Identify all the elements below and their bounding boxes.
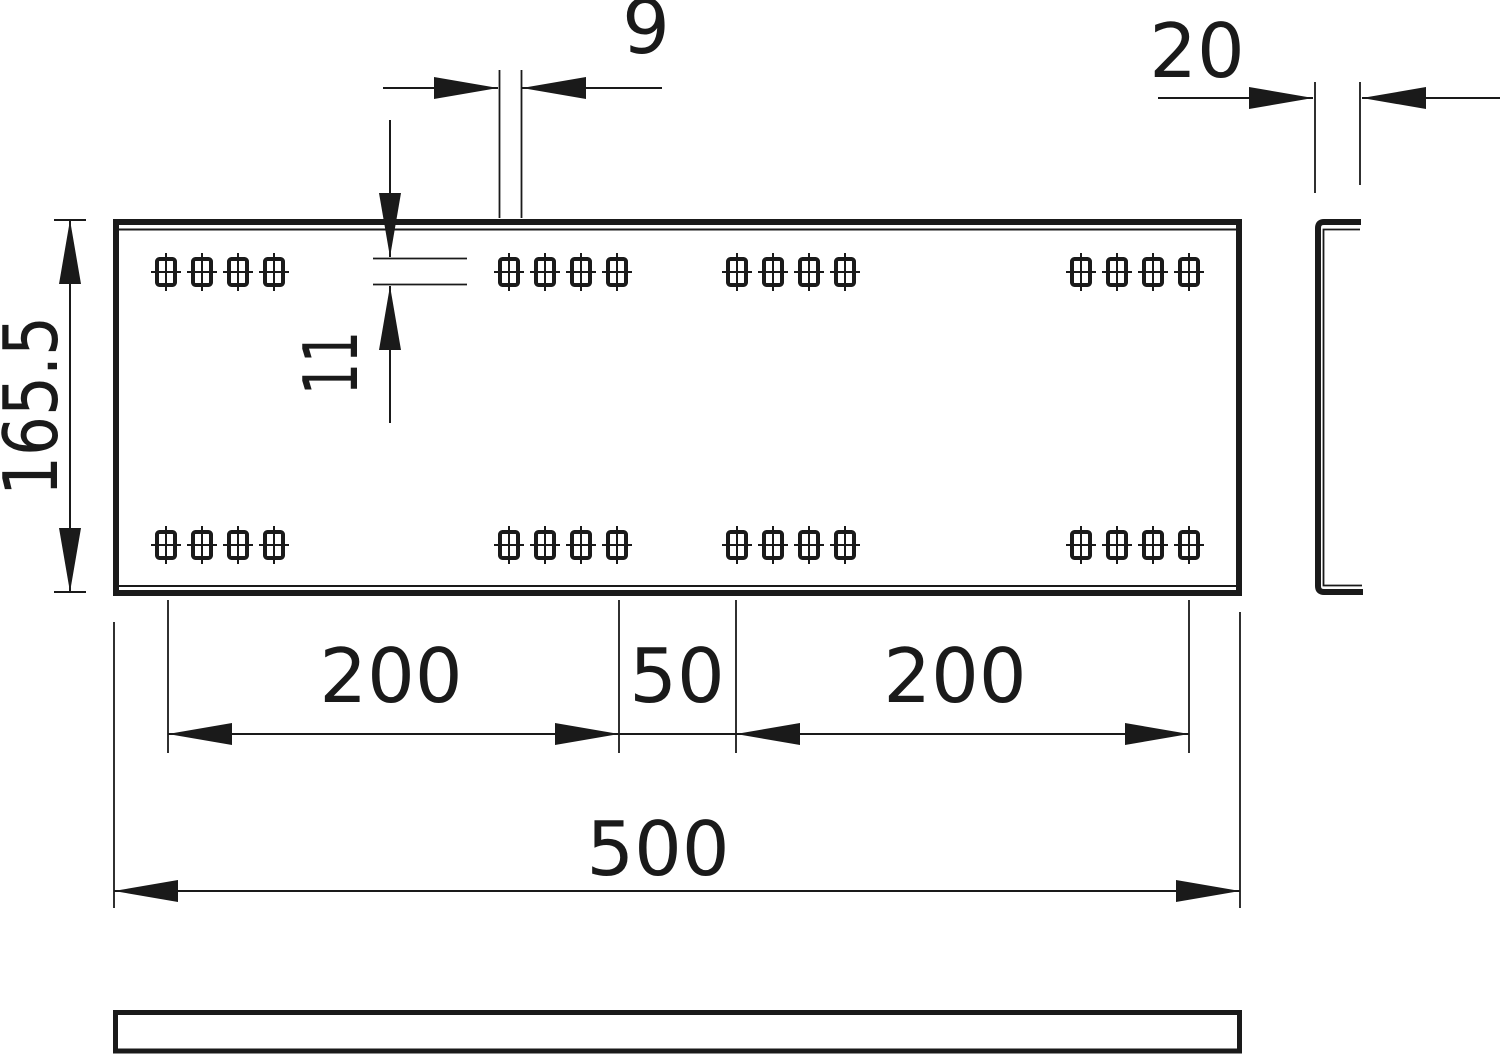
cover-plate-side-profile	[1318, 222, 1363, 592]
arrowhead	[1176, 880, 1240, 902]
arrowhead	[434, 77, 498, 99]
arrowhead	[522, 77, 586, 99]
dim-label-pitch-left: 200	[319, 632, 462, 720]
arrowhead	[1249, 87, 1313, 109]
dim-label-pitch-right: 200	[883, 632, 1026, 720]
dim-label-overall-width: 500	[586, 805, 729, 893]
arrowhead	[59, 528, 81, 592]
dim-label-hole-width: 9	[622, 0, 670, 71]
dim-label-pitch-mid: 50	[629, 632, 724, 720]
arrowhead	[114, 880, 178, 902]
cover-plate-top-view	[116, 1013, 1240, 1052]
dim-hole-group-pitch: 200 50 200	[168, 600, 1189, 753]
arrowhead	[1125, 723, 1189, 745]
arrowhead	[59, 220, 81, 284]
technical-drawing-canvas: 165.5 9 11 20	[0, 0, 1500, 1059]
dim-label-plate-height: 165.5	[0, 316, 75, 496]
dim-hole-width: 9	[383, 0, 670, 218]
dim-label-flange-depth: 20	[1149, 7, 1244, 95]
arrowhead	[1362, 87, 1426, 109]
arrowhead	[555, 723, 619, 745]
arrowhead	[736, 723, 800, 745]
profile-inner-contour	[1324, 230, 1363, 586]
dim-plate-height: 165.5	[0, 220, 86, 592]
dim-flange-depth: 20	[1149, 7, 1500, 193]
dim-label-hole-height: 11	[287, 331, 375, 395]
arrowhead	[168, 723, 232, 745]
profile-outer-contour	[1318, 222, 1363, 592]
drawing-page: 165.5 9 11 20	[0, 0, 1500, 1059]
